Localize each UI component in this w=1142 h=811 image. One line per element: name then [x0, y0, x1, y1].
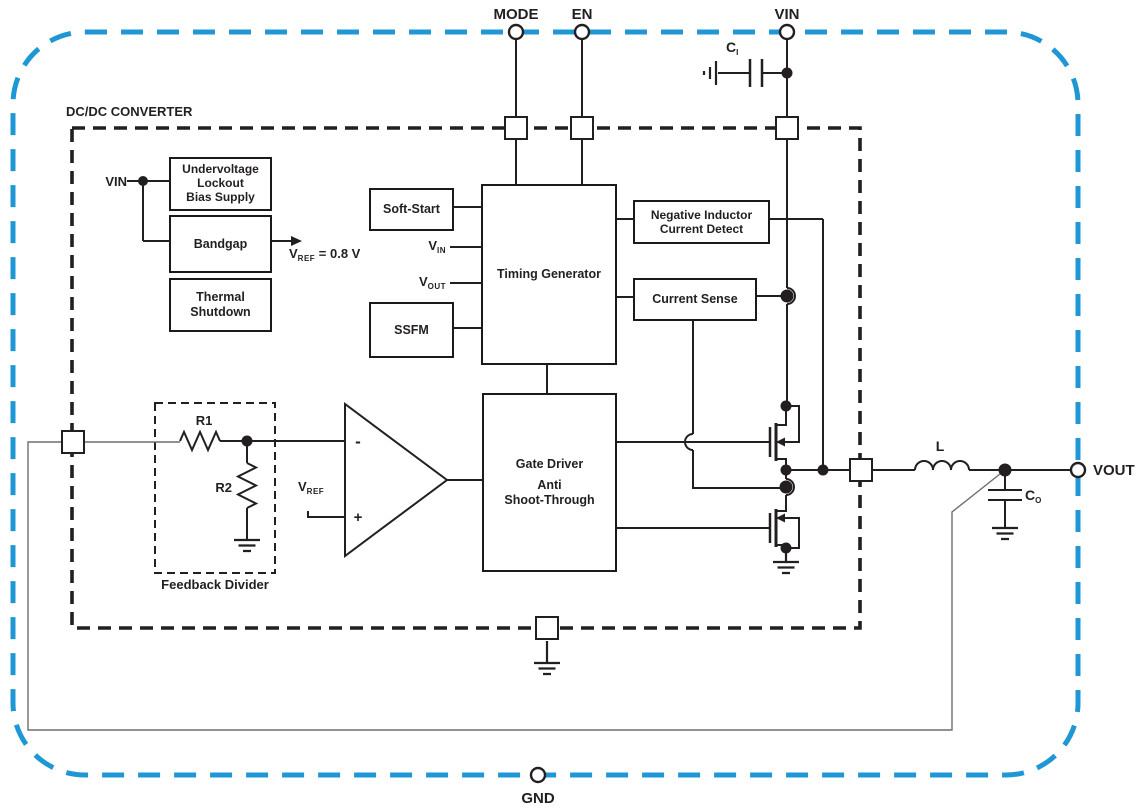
label-vin-input-main: V: [428, 238, 437, 253]
opamp-minus-input: -: [355, 432, 361, 452]
label-vref-rest: = 0.8 V: [315, 246, 360, 261]
block-line: Negative Inductor: [651, 208, 752, 222]
block-undervoltage-lockout: Undervoltage Lockout Bias Supply: [169, 157, 272, 211]
block-line: Shutdown: [190, 305, 250, 320]
mosfet-high-side: [770, 406, 799, 470]
block-label: Soft-Start: [383, 202, 440, 217]
block-bandgap: Bandgap: [169, 215, 272, 273]
block-line: Undervoltage: [182, 163, 259, 177]
block-gate-driver: Gate Driver Anti Shoot-Through: [482, 393, 617, 572]
label-r2: R2: [215, 480, 232, 495]
block-current-sense: Current Sense: [633, 278, 757, 321]
chip-title: DC/DC CONVERTER: [66, 104, 192, 119]
label-vout-input-sub: OUT: [428, 282, 446, 291]
inductor-symbol: [915, 461, 969, 470]
pin-label-gnd: GND: [521, 790, 554, 807]
label-inductor: L: [936, 438, 945, 454]
label-cap-in-sub: I: [736, 48, 739, 57]
block-line: Shoot-Through: [504, 493, 594, 508]
pin-label-vin: VIN: [774, 6, 799, 23]
resistor-r2-symbol: [238, 463, 256, 508]
block-negative-inductor-current-detect: Negative Inductor Current Detect: [633, 200, 770, 244]
label-vout-input: VOUT: [419, 274, 446, 291]
label-cap-in: CI: [726, 39, 739, 57]
block-line: Current Detect: [651, 222, 752, 236]
block-label: SSFM: [394, 323, 429, 338]
label-cap-out-main: C: [1025, 487, 1035, 503]
mosfet-low-side: [770, 509, 799, 548]
pin-label-vout: VOUT: [1093, 462, 1135, 479]
dcdc-converter-diagram: Undervoltage Lockout Bias Supply Bandgap…: [0, 0, 1142, 811]
block-line: Lockout: [182, 177, 259, 191]
block-timing-generator: Timing Generator: [481, 184, 617, 365]
label-r1: R1: [196, 413, 213, 428]
label-vref-main: V: [289, 246, 298, 261]
label-vref-opamp-sub: REF: [307, 487, 325, 496]
block-thermal-shutdown: Thermal Shutdown: [169, 278, 272, 332]
vref-arrowhead: [291, 236, 302, 246]
block-label: Timing Generator: [497, 267, 601, 282]
label-cap-out-sub: O: [1035, 496, 1042, 505]
label-vout-input-main: V: [419, 274, 428, 289]
opamp-plus-input: +: [354, 509, 363, 526]
label-vin-internal: VIN: [105, 174, 127, 189]
block-line: Bias Supply: [182, 191, 259, 205]
label-vin-input-sub: IN: [437, 246, 446, 255]
label-vref-value: VREF = 0.8 V: [289, 246, 360, 263]
label-vref-opamp-main: V: [298, 479, 307, 494]
block-line: Anti: [537, 478, 561, 493]
resistor-r1-symbol: [180, 432, 220, 450]
pin-label-en: EN: [572, 6, 593, 23]
label-feedback-divider: Feedback Divider: [161, 577, 269, 592]
label-vref-opamp: VREF: [298, 479, 324, 496]
block-line: Thermal: [196, 290, 245, 305]
label-vref-sub: REF: [298, 254, 316, 263]
block-label: Current Sense: [652, 292, 737, 307]
block-label: Bandgap: [194, 237, 247, 252]
label-cap-in-main: C: [726, 39, 736, 55]
opamp-symbol: [345, 404, 447, 556]
pin-label-mode: MODE: [494, 6, 539, 23]
block-soft-start: Soft-Start: [369, 188, 454, 231]
block-line: Gate Driver: [516, 457, 583, 472]
label-cap-out: CO: [1025, 487, 1042, 505]
label-vin-input: VIN: [428, 238, 446, 255]
block-ssfm: SSFM: [369, 302, 454, 358]
